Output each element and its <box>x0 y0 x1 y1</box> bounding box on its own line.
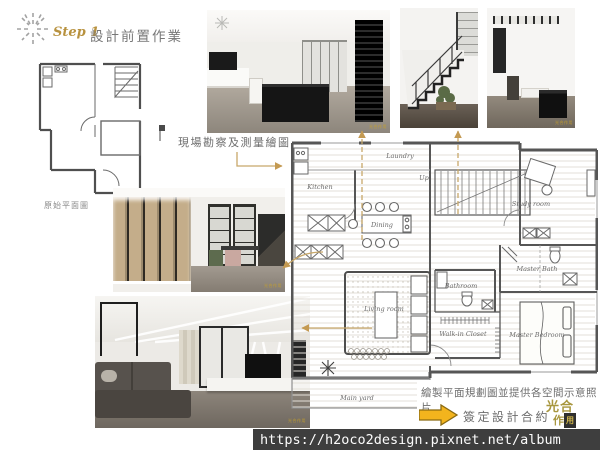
photo4-ceiling <box>113 188 285 197</box>
label-master-bath: Master Bath <box>516 265 558 273</box>
photo1-black-door <box>355 20 383 122</box>
label-bathroom: Bathroom <box>444 282 478 290</box>
survey-pin-icon <box>159 125 165 141</box>
photo-staircase <box>400 8 478 128</box>
photo3-watermark: 光合作用 <box>555 120 573 126</box>
photo3-upper-rail <box>493 16 559 24</box>
survey-callout: 現場勘察及測量繪圖 <box>178 134 291 150</box>
photo5-pillow <box>101 370 117 382</box>
photo1-tv-cabinet <box>207 68 249 88</box>
label-dining: Dining <box>370 221 393 229</box>
company-logo: 光合 作用 <box>546 400 576 428</box>
photo4-light-strip <box>113 281 191 284</box>
label-master-bed: Master Bedroom <box>508 331 564 339</box>
original-floor-plan-sketch <box>25 57 145 199</box>
logo-char: 作 <box>553 415 564 427</box>
photo1-island-table <box>262 84 329 122</box>
photo4-watermark: 光合作用 <box>264 283 282 289</box>
label-living: Living room <box>363 305 404 313</box>
slide-canvas: Step 1 設計前置作業 原始平面圖 現場勘察及測量繪圖 <box>0 0 600 450</box>
photo-living-dining: 光合作用 <box>207 10 390 133</box>
url-watermark-bar: https://h2oco2design.pixnet.net/album <box>253 429 600 450</box>
label-kitchen: Kitchen <box>306 183 332 191</box>
photo5-watermark: 光合作用 <box>288 418 306 424</box>
photo3-dark-column <box>493 28 506 73</box>
photo-loft-living: 光合作用 <box>487 8 575 128</box>
photo1-lamp-icon <box>215 16 229 30</box>
sunburst-icon <box>15 11 51 47</box>
photo5-curtain <box>179 330 199 384</box>
contract-text: 簽定設計合約 <box>463 408 550 425</box>
photo3-shelf <box>507 76 519 100</box>
photo5-tv <box>245 354 281 378</box>
sketch-caption: 原始平面圖 <box>44 200 89 211</box>
label-study: Study room <box>512 200 550 208</box>
photo4-desk <box>221 246 259 250</box>
photo2-stairs <box>400 8 478 128</box>
label-main-yard: Main yard <box>339 394 374 402</box>
label-closet: Walk-in Closet <box>439 330 487 338</box>
survey-arrow <box>237 152 282 166</box>
photo4-stairs <box>258 214 285 266</box>
label-laundry: Laundry <box>385 152 414 160</box>
photo3-island <box>539 90 567 118</box>
photo5-metal-shelf <box>100 302 138 356</box>
page-title: 設計前置作業 <box>90 25 183 45</box>
photo1-tv <box>209 52 237 70</box>
logo-line1: 光合 <box>546 399 574 414</box>
main-floor-plan: Kitchen Laundry Up Study room Dining Liv… <box>291 140 598 412</box>
label-up: Up <box>419 174 429 182</box>
photo4-wardrobe <box>113 197 191 283</box>
photo4-pink-chair <box>225 248 241 266</box>
photo5-sofa-chaise <box>95 390 191 418</box>
logo-boxed-char: 用 <box>564 413 576 428</box>
yellow-arrow-icon <box>419 404 459 426</box>
photo1-watermark: 光合作用 <box>369 124 387 130</box>
photo-living-room-tv: 光合作用 <box>95 296 310 428</box>
url-text: https://h2oco2design.pixnet.net/album <box>253 432 561 448</box>
photo4-green-chair <box>209 250 223 266</box>
photo-wardrobe-study: 光合作用 <box>113 188 285 292</box>
photo1-chair <box>249 78 263 104</box>
